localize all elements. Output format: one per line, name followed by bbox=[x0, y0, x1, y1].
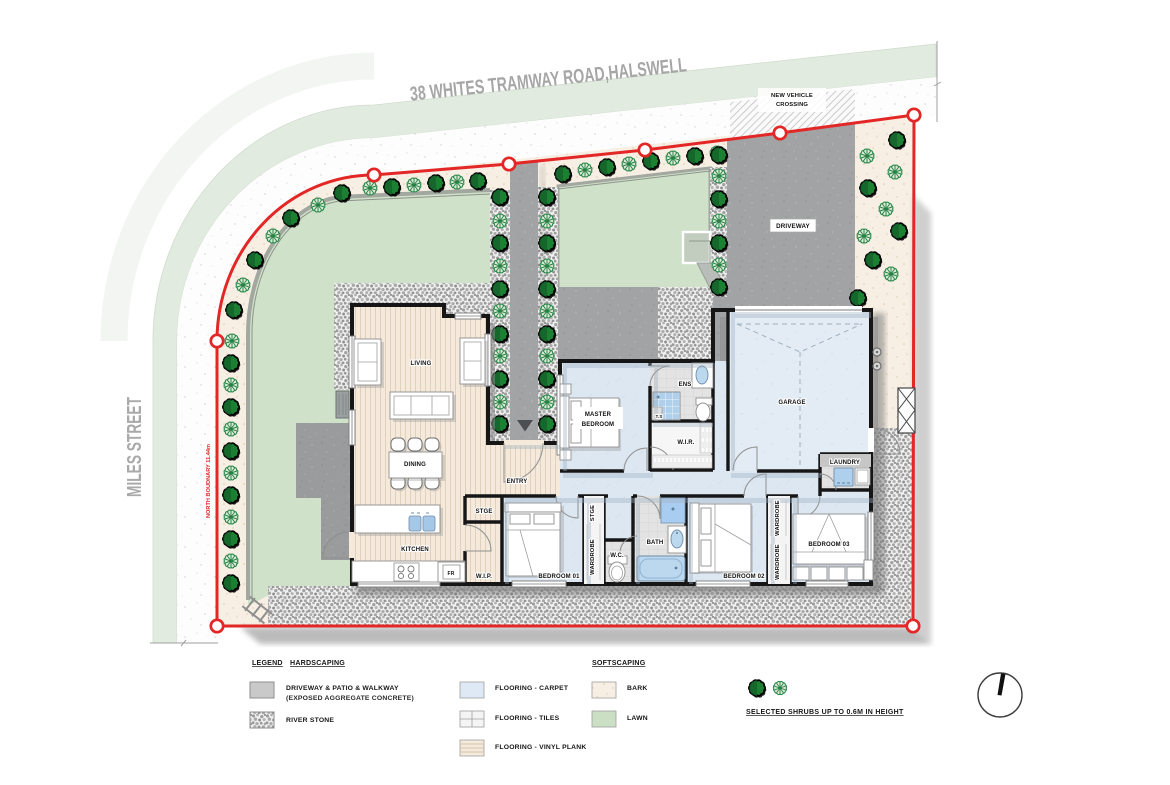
svg-text:LAWN: LAWN bbox=[627, 715, 648, 722]
svg-text:BEDROOM: BEDROOM bbox=[582, 422, 614, 428]
svg-text:STGE: STGE bbox=[590, 505, 596, 521]
svg-text:KITCHEN: KITCHEN bbox=[401, 547, 429, 553]
svg-text:WARDROBE: WARDROBE bbox=[775, 500, 781, 536]
svg-text:W.C.: W.C. bbox=[610, 553, 624, 559]
svg-text:LEGEND: LEGEND bbox=[252, 659, 283, 667]
svg-text:W.I.P.: W.I.P. bbox=[476, 574, 492, 580]
svg-text:CROSSING: CROSSING bbox=[776, 102, 808, 108]
svg-text:T.S: T.S bbox=[655, 414, 662, 419]
svg-text:BARK: BARK bbox=[627, 685, 647, 692]
svg-text:FR: FR bbox=[448, 571, 455, 577]
svg-text:MASTER: MASTER bbox=[585, 412, 612, 418]
svg-text:BEDROOM 01: BEDROOM 01 bbox=[538, 574, 580, 580]
svg-text:(EXPOSED AGGREGATE CONCRETE): (EXPOSED AGGREGATE CONCRETE) bbox=[286, 695, 414, 702]
svg-text:NEW VEHICLE: NEW VEHICLE bbox=[771, 93, 813, 99]
svg-text:DINING: DINING bbox=[404, 462, 426, 468]
svg-text:ENTRY: ENTRY bbox=[507, 479, 528, 485]
svg-text:DRIVEWAY: DRIVEWAY bbox=[776, 223, 810, 230]
svg-text:FLOORING - VINYL PLANK: FLOORING - VINYL PLANK bbox=[495, 744, 587, 751]
svg-text:LIVING: LIVING bbox=[411, 361, 432, 367]
svg-text:SELECTED SHRUBS UP TO 0.6M IN: SELECTED SHRUBS UP TO 0.6M IN HEIGHT bbox=[746, 709, 904, 716]
svg-text:LAUNDRY: LAUNDRY bbox=[830, 460, 860, 466]
svg-text:GARAGE: GARAGE bbox=[778, 400, 805, 406]
svg-text:DRIVEWAY & PATIO & WALKWAY: DRIVEWAY & PATIO & WALKWAY bbox=[286, 685, 399, 692]
svg-text:SOFTSCAPING: SOFTSCAPING bbox=[592, 659, 646, 667]
svg-text:BEDROOM 03: BEDROOM 03 bbox=[808, 542, 850, 548]
svg-text:ENS: ENS bbox=[679, 382, 692, 388]
svg-text:BEDROOM 02: BEDROOM 02 bbox=[723, 574, 765, 580]
svg-text:W.I.R.: W.I.R. bbox=[677, 440, 694, 446]
svg-text:BATH: BATH bbox=[647, 540, 664, 546]
svg-text:FLOORING - TILES: FLOORING - TILES bbox=[495, 715, 560, 722]
svg-text:RIVER STONE: RIVER STONE bbox=[286, 717, 334, 724]
svg-text:STGE: STGE bbox=[476, 509, 493, 515]
svg-text:MILES STREET: MILES STREET bbox=[124, 397, 146, 497]
svg-text:NORTH BOUDNARY 11.44m: NORTH BOUDNARY 11.44m bbox=[206, 444, 212, 518]
svg-text:HARDSCAPING: HARDSCAPING bbox=[290, 659, 345, 667]
svg-text:WARDROBE: WARDROBE bbox=[775, 544, 781, 580]
svg-text:FLOORING - CARPET: FLOORING - CARPET bbox=[495, 685, 569, 692]
svg-text:WARDROBE: WARDROBE bbox=[590, 539, 596, 575]
